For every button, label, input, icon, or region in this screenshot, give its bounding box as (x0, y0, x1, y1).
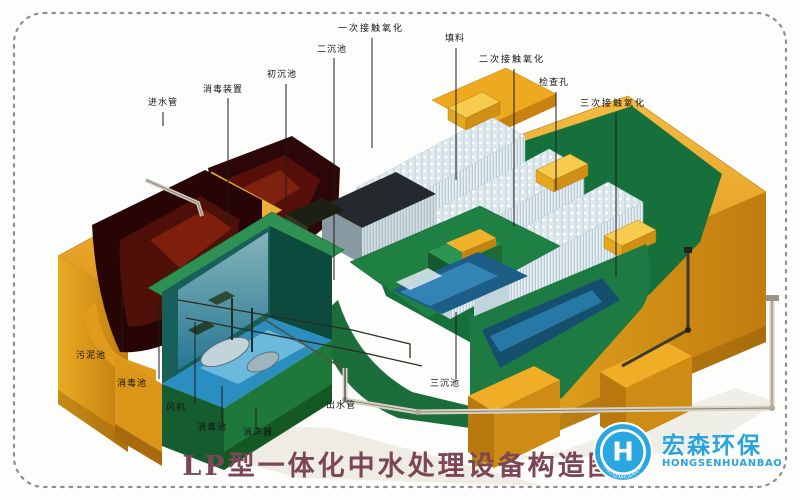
dotted-border (0, 0, 800, 500)
diagram-page: 进水管 消毒装置 初沉池 二沉池 一次接触氧化 填料 二次接触氧化 检查孔 三次… (0, 0, 800, 500)
